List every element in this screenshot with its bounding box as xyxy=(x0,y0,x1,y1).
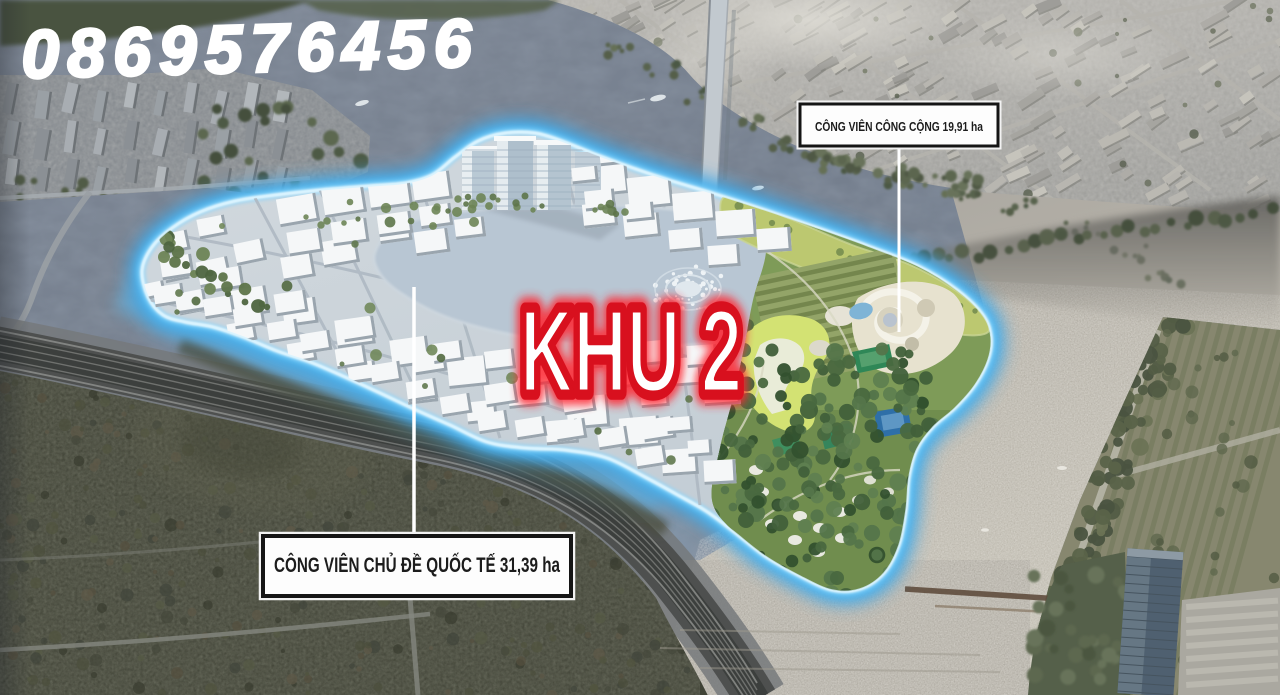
svg-text:CÔNG VIÊN CHỦ ĐỀ QUỐC TẾ 31,39: CÔNG VIÊN CHỦ ĐỀ QUỐC TẾ 31,39 ha xyxy=(274,553,560,577)
svg-text:KHU 2: KHU 2 xyxy=(520,285,742,418)
svg-text:0869576456: 0869576456 xyxy=(20,5,480,93)
svg-text:CÔNG VIÊN CÔNG CỘNG 19,91 ha: CÔNG VIÊN CÔNG CỘNG 19,91 ha xyxy=(815,119,984,134)
